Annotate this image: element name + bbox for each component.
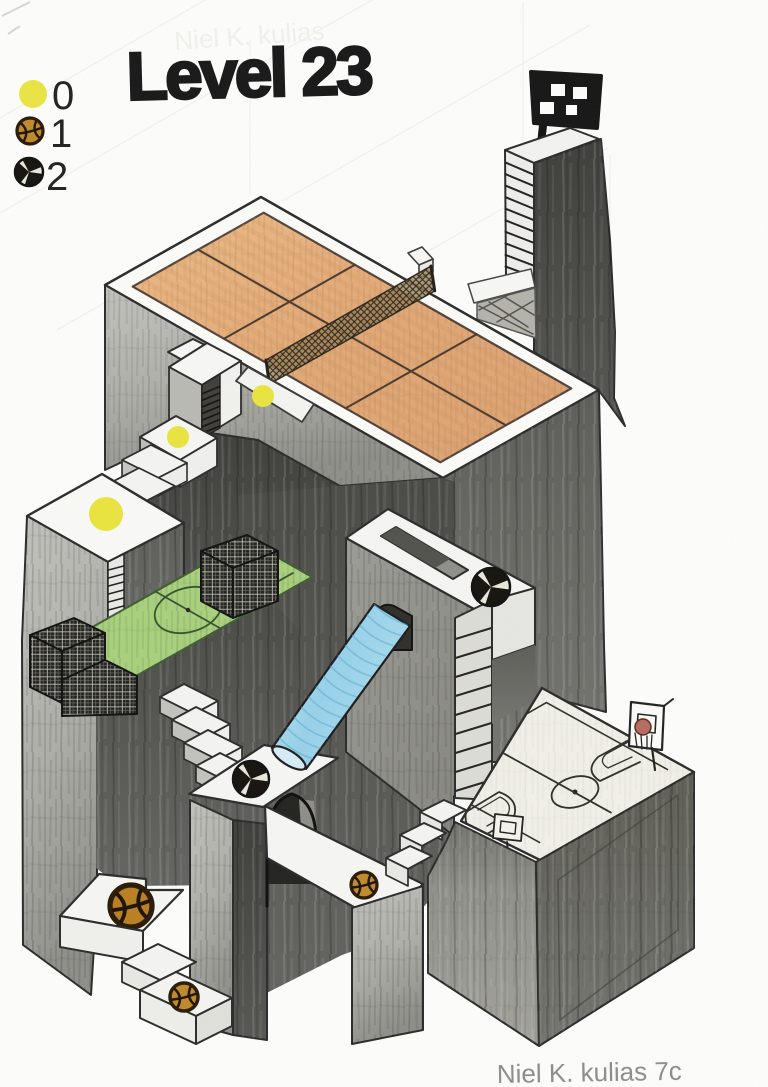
svg-text:Niel K. kulias 7c: Niel K. kulias 7c bbox=[497, 1056, 682, 1087]
